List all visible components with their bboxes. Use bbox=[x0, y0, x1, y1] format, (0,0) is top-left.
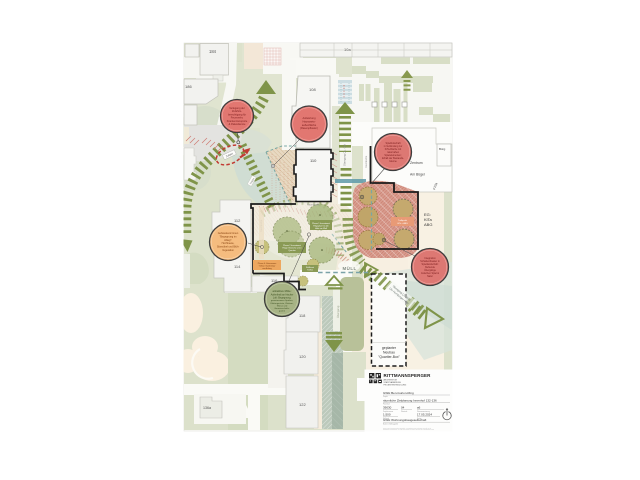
svg-text:am Anfang: am Anfang bbox=[262, 267, 272, 270]
svg-text:120: 120 bbox=[299, 354, 306, 359]
svg-text:118: 118 bbox=[299, 313, 306, 318]
svg-text:Raumkante: Raumkante bbox=[365, 155, 368, 168]
svg-text:184: 184 bbox=[209, 49, 217, 54]
svg-text:Quartier: Quartier bbox=[288, 249, 296, 252]
svg-text:Hauswarts-: Hauswarts- bbox=[302, 119, 315, 123]
svg-text:außenfläche: außenfläche bbox=[302, 123, 317, 127]
svg-text:garten: garten bbox=[279, 310, 286, 313]
svg-text:RITTMANNSPERGER: RITTMANNSPERGER bbox=[384, 373, 432, 378]
svg-text:114: 114 bbox=[234, 264, 241, 269]
svg-text:110: 110 bbox=[310, 158, 317, 163]
svg-text:Am Bügel: Am Bügel bbox=[410, 173, 425, 177]
svg-text:GWH Ben-Gurion-Ring: GWH Ben-Gurion-Ring bbox=[383, 391, 414, 395]
svg-text:Treffen: Treffen bbox=[307, 269, 313, 272]
svg-text:Bürg: Bürg bbox=[439, 147, 446, 151]
svg-text:"Quartier-Box": "Quartier-Box" bbox=[378, 355, 400, 359]
svg-text:Aufwertung: Aufwertung bbox=[302, 116, 316, 120]
svg-text:122: 122 bbox=[299, 402, 306, 407]
svg-text:1:500: 1:500 bbox=[383, 413, 391, 417]
svg-text:Raumkante: Raumkante bbox=[330, 185, 333, 197]
svg-text:39030: 39030 bbox=[383, 406, 392, 410]
svg-text:bäume: bäume bbox=[389, 160, 397, 163]
svg-text:17.05.2024: 17.05.2024 bbox=[417, 413, 432, 417]
svg-text:112: 112 bbox=[234, 218, 241, 223]
svg-text:Höfe am Wall: Höfe am Wall bbox=[315, 228, 327, 230]
svg-text:Neubau: Neubau bbox=[383, 351, 395, 355]
svg-text:186: 186 bbox=[185, 84, 192, 89]
svg-text:Zentrum: Zentrum bbox=[410, 161, 423, 165]
svg-text:Übergang Qu. Ost: Übergang Qu. Ost bbox=[343, 144, 347, 166]
svg-text:136a: 136a bbox=[203, 406, 211, 410]
svg-text:KiTa + ABG: KiTa + ABG bbox=[397, 222, 408, 225]
svg-text:MÜLL: MÜLL bbox=[343, 266, 357, 271]
svg-text:(Rasenpflaster): (Rasenpflaster) bbox=[300, 126, 318, 130]
svg-text:ABG: ABG bbox=[424, 222, 432, 227]
svg-text:10a: 10a bbox=[344, 47, 351, 52]
svg-text:GWH Wohnungsbaugesellschaft: GWH Wohnungsbaugesellschaft bbox=[383, 418, 426, 422]
svg-text:a6: a6 bbox=[417, 406, 421, 410]
svg-text:geplanter: geplanter bbox=[382, 346, 397, 350]
svg-text:PROJEKTENTWICKLUNG: PROJEKTENTWICKLUNG bbox=[384, 384, 407, 386]
svg-text:Übergang: Übergang bbox=[336, 305, 340, 318]
svg-text:Klettergerüste, Klettern,: Klettergerüste, Klettern, bbox=[271, 302, 294, 305]
svg-text:attraktive Mitte:: attraktive Mitte: bbox=[273, 289, 292, 293]
svg-text:04: 04 bbox=[401, 406, 405, 410]
svg-text:Luft: Begegnung,: Luft: Begegnung, bbox=[273, 296, 292, 299]
svg-text:Raumkante: Raumkante bbox=[307, 204, 320, 207]
svg-text:& Paketdienste: & Paketdienste bbox=[229, 123, 246, 126]
svg-text:Gemeinschafts-: Gemeinschafts- bbox=[274, 307, 290, 310]
svg-text:Treffpunkt: Treffpunkt bbox=[398, 219, 407, 222]
svg-text:108: 108 bbox=[309, 87, 316, 92]
svg-text:Natur: Natur bbox=[427, 275, 433, 278]
svg-text:räumliche Zielplanung Innenho: räumliche Zielplanung Innenhof 132-136 bbox=[383, 398, 437, 402]
svg-text:Vegetation: Vegetation bbox=[222, 249, 234, 252]
